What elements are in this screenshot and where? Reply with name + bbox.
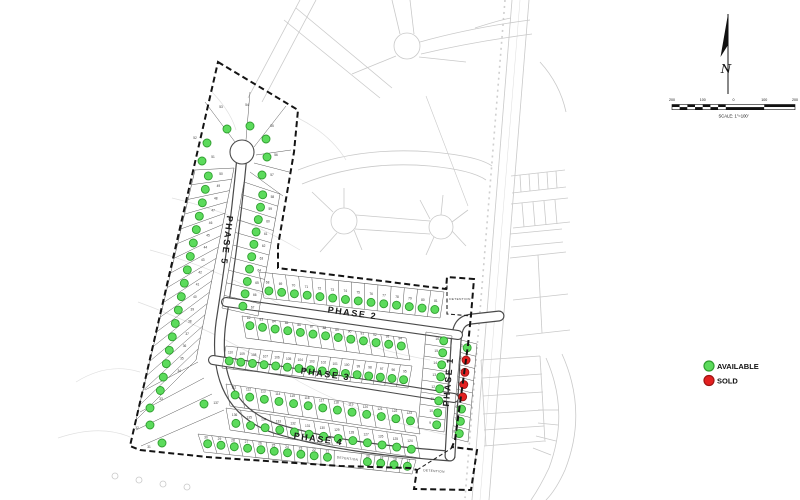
lot-divider <box>415 289 418 315</box>
lot-number: 99 <box>357 364 361 368</box>
lot-dot-available <box>248 253 256 261</box>
lot-divider <box>393 336 397 358</box>
lot-divider <box>225 437 230 455</box>
background-plat-line <box>538 255 542 333</box>
lot-divider <box>328 399 332 421</box>
lot-dot-available <box>284 327 292 335</box>
background-plat-line <box>472 0 512 500</box>
lot-dot-available <box>284 449 292 457</box>
lot-number: 96 <box>392 368 396 372</box>
lot-divider <box>416 412 420 434</box>
lot-divider <box>458 377 474 381</box>
lot-line <box>246 92 250 140</box>
lot-number: 116 <box>304 396 309 400</box>
background-plat-line <box>296 8 392 88</box>
lot-dot-available <box>168 333 176 341</box>
lot-dot-available <box>341 295 349 303</box>
lot-divider <box>419 416 445 420</box>
lot-divider <box>195 168 234 170</box>
lot-dot-available <box>246 122 254 130</box>
lot-divider <box>270 390 274 412</box>
lot-divider <box>368 333 372 355</box>
contour-line <box>298 118 346 160</box>
lot-divider <box>280 321 284 343</box>
contour-line <box>58 431 130 438</box>
lot-number: 41 <box>196 283 200 287</box>
background-plat-line <box>544 201 546 225</box>
lot-dot-available <box>223 125 231 133</box>
background-culdesac <box>331 208 357 234</box>
background-plat-line <box>533 202 535 226</box>
lot-dot-available <box>201 185 209 193</box>
lot-dot-available <box>400 376 408 384</box>
lot-number: 77 <box>382 293 386 297</box>
lot-dot-available <box>259 323 267 331</box>
scale-bar-block <box>764 105 795 108</box>
lot-dot-available <box>183 266 191 274</box>
lot-divider <box>352 282 353 308</box>
lot-dot-available <box>203 139 211 147</box>
lot-number: 38 <box>188 320 192 324</box>
lot-divider <box>381 335 385 357</box>
lot-number: 39 <box>191 307 195 311</box>
lot-dot-available <box>246 265 254 273</box>
lot-dot-available <box>189 239 197 247</box>
lot-dot-available <box>258 171 266 179</box>
lot-dot-available <box>347 335 355 343</box>
lot-dot-available <box>316 293 324 301</box>
lot-dot-available <box>303 291 311 299</box>
background-plat-line <box>298 151 492 170</box>
lot-dot-available <box>405 303 413 311</box>
background-culdesac <box>136 477 142 483</box>
lot-number: 67 <box>251 305 255 309</box>
background-plat-line <box>538 423 558 425</box>
lot-dot-available <box>290 400 298 408</box>
background-culdesac <box>184 484 190 490</box>
lot-number: 50 <box>219 172 223 176</box>
lot-divider <box>285 275 289 301</box>
lot-dot-available <box>349 437 357 445</box>
lot-dot-available <box>309 330 317 338</box>
background-plat-line <box>312 192 333 212</box>
lot-dot-available <box>204 440 212 448</box>
lot-number: 60 <box>266 220 270 224</box>
background-plat-line <box>511 242 563 247</box>
lot-dot-available <box>363 458 371 466</box>
lot-number: 80 <box>421 298 425 302</box>
lot-divider <box>267 319 271 341</box>
lot-number: 109 <box>239 352 245 356</box>
background-plat-line <box>484 426 544 430</box>
lot-dot-available <box>262 135 270 143</box>
lot-divider <box>171 247 219 273</box>
lot-number: 62 <box>262 244 266 248</box>
lot-dot-available <box>244 444 252 452</box>
lot-dot-available <box>385 340 393 348</box>
background-plat-line <box>481 356 540 360</box>
lot-dot-available <box>439 349 447 357</box>
lot-number: 122 <box>392 409 398 413</box>
scale-bar-block <box>703 107 711 110</box>
lot-number: 79 <box>408 296 412 300</box>
lot-dot-available <box>257 446 265 454</box>
lot-number: 93 <box>386 335 390 339</box>
lot-divider <box>358 403 362 425</box>
lot-dot-available <box>363 439 371 447</box>
background-plat-line <box>533 448 551 455</box>
scale-caption: SCALE: 1"=100' <box>718 114 748 119</box>
contour-line <box>76 369 140 382</box>
background-plat-line <box>410 0 414 34</box>
lot-number: 123 <box>407 411 413 415</box>
lot-number: 86 <box>297 323 301 327</box>
lot-number: 24 <box>285 445 289 449</box>
lot-divider <box>440 292 444 318</box>
lot-dot-available <box>247 422 255 430</box>
lot-dot-available <box>146 404 154 412</box>
lot-divider <box>325 279 327 305</box>
lot-divider <box>293 445 295 461</box>
background-plat-line <box>540 356 545 442</box>
lot-divider <box>390 286 391 312</box>
lot-number: 28 <box>231 439 235 443</box>
lot-line <box>141 410 224 446</box>
lot-divider <box>399 458 402 472</box>
lot-line <box>145 362 198 390</box>
background-plat-line <box>516 330 570 336</box>
lot-dot-available <box>272 362 280 370</box>
lot-number: 69 <box>279 282 283 286</box>
lot-dot-available <box>263 153 271 161</box>
lot-number: 42 <box>198 270 202 274</box>
detention-label: DETENTION <box>423 468 445 473</box>
lot-dot-available <box>259 191 267 199</box>
background-plat-line <box>354 230 362 250</box>
lot-dot-available <box>225 357 233 365</box>
lot-divider <box>307 447 308 463</box>
lot-number: 125 <box>393 437 399 441</box>
background-plat-line <box>320 233 337 252</box>
lot-number: 102 <box>321 361 327 365</box>
scale-bar-block <box>672 105 680 108</box>
scale-tick-label: 0 <box>733 98 735 102</box>
background-plat-line <box>480 0 520 500</box>
lot-number: 26 <box>258 442 262 446</box>
lot-number: 110 <box>228 351 233 355</box>
lot-divider <box>330 328 334 350</box>
scale-bar-block <box>695 107 703 110</box>
lot-divider <box>266 442 269 459</box>
background-plat-line <box>355 229 430 234</box>
lot-dot-available <box>257 203 265 211</box>
contour-line <box>210 90 236 130</box>
lot-dot-available <box>270 447 278 455</box>
lot-dot-available <box>232 419 240 427</box>
lot-dot-available <box>275 397 283 405</box>
lot-number: 49 <box>217 184 221 188</box>
lot-dot-available <box>180 279 188 287</box>
background-plat-line <box>531 358 559 500</box>
lot-dot-available <box>376 373 384 381</box>
lot-number: 55 <box>270 124 274 128</box>
lot-divider <box>412 460 416 474</box>
lot-dot-available <box>393 443 401 451</box>
lot-number: 14 <box>433 361 437 365</box>
lot-number: 84 <box>272 319 276 323</box>
background-plat-line <box>426 237 434 255</box>
lot-divider <box>198 434 204 452</box>
lot-number: 66 <box>253 293 257 297</box>
lot-number: 134 <box>261 417 267 421</box>
lot-dot-available <box>296 328 304 336</box>
lot-number: 88 <box>323 326 327 330</box>
lot-number: 30 <box>204 435 208 439</box>
lot-dot-available <box>290 290 298 298</box>
lot-dot-available <box>237 358 245 366</box>
background-plat-line <box>522 203 524 227</box>
lot-dot-available <box>392 415 400 423</box>
lot-number: 118 <box>334 400 339 404</box>
lot-dot-available <box>158 439 166 447</box>
lot-number: 68 <box>266 281 270 285</box>
lot-number: 33 <box>159 397 163 401</box>
scale-bar-block <box>710 105 718 108</box>
lot-number: 13 <box>432 373 436 377</box>
lot-divider <box>373 455 375 470</box>
lot-dot-available <box>333 406 341 414</box>
scale-bar: 200 100 0 100 200 SCALE: 1"=100' <box>669 98 798 119</box>
subdivision-plat: 5049484746454443424140393837363534585960… <box>58 0 576 500</box>
lot-dot-available <box>348 408 356 416</box>
lot-number: 108 <box>251 353 257 357</box>
lot-divider <box>242 316 246 338</box>
lot-number: 54 <box>245 103 249 107</box>
lot-dot-available <box>246 393 254 401</box>
lot-number: 91 <box>360 331 364 335</box>
lot-number: 124 <box>407 439 413 443</box>
lot-number: 128 <box>349 430 355 434</box>
lot-dot-available <box>246 322 254 330</box>
lot-divider <box>425 344 451 348</box>
lot-divider <box>239 439 243 456</box>
lot-number: 71 <box>305 285 309 289</box>
background-plat-line <box>420 20 530 42</box>
lot-number: 27 <box>245 440 249 444</box>
background-plat-line <box>540 62 566 112</box>
lot-dot-available <box>192 226 200 234</box>
lot-number: 35 <box>180 357 184 361</box>
lot-number: 9 <box>429 421 431 425</box>
lot-number: 47 <box>211 209 215 213</box>
lot-number: 98 <box>368 366 372 370</box>
north-label: N <box>720 62 732 76</box>
scale-bar-blocks <box>672 105 795 110</box>
detention-label: DETENTION <box>449 297 470 301</box>
lot-number: 82 <box>247 316 251 320</box>
lot-number: 100 <box>344 363 350 367</box>
lot-number: 129 <box>334 428 340 432</box>
lot-number: 117 <box>319 398 324 402</box>
lot-dot-available <box>372 339 380 347</box>
lot-divider <box>305 324 309 346</box>
scale-bar-block <box>680 107 688 110</box>
lot-divider <box>427 291 430 317</box>
lot-divider <box>401 410 405 432</box>
scale-bar-block <box>718 105 726 108</box>
lot-number: 32 <box>135 426 139 430</box>
background-plat-line <box>426 96 468 206</box>
lot-line <box>254 163 289 172</box>
lot-dot-available <box>252 228 260 236</box>
scale-tick-label: 100 <box>700 98 706 102</box>
scale-bar-block <box>687 107 695 110</box>
lot-dot-available <box>329 294 337 302</box>
lot-number: 46 <box>209 221 213 225</box>
lot-number: 111 <box>231 385 236 389</box>
lot-number: 65 <box>255 281 259 285</box>
detention-label: DETENTION <box>337 455 359 462</box>
background-plat-line <box>510 229 562 234</box>
lot-number: 103 <box>309 359 315 363</box>
lot-number: 40 <box>193 295 197 299</box>
lot-number: 132 <box>290 422 296 426</box>
lot-number: 89 <box>335 328 339 332</box>
background-plat-line <box>520 175 521 192</box>
lot-number: 114 <box>275 392 280 396</box>
scale-bar-block <box>726 105 734 108</box>
background-plat-line <box>555 200 557 224</box>
lot-number: 52 <box>193 136 197 140</box>
lot-dot-available <box>254 216 262 224</box>
lot-dot-available <box>198 157 206 165</box>
lot-dot-available <box>322 332 330 340</box>
lot-dot-available <box>231 391 239 399</box>
lot-dot-available <box>248 359 256 367</box>
lot-dot-available <box>230 443 238 451</box>
lot-dot-available <box>146 421 154 429</box>
lot-dot-available <box>388 374 396 382</box>
lot-dot-available <box>195 212 203 220</box>
site-map: 5049484746454443424140393837363534585960… <box>0 0 800 500</box>
lot-number: 121 <box>377 407 383 411</box>
background-plat-line <box>538 173 539 190</box>
lot-number: 70 <box>292 283 296 287</box>
lot-number: 120 <box>363 405 369 409</box>
background-plat-line <box>392 0 400 34</box>
lot-number: 85 <box>285 321 289 325</box>
lot-divider <box>255 318 259 340</box>
background-plat-line <box>529 174 530 191</box>
scale-tick-label: 200 <box>792 98 798 102</box>
lot-dot-available <box>363 410 371 418</box>
lot-divider <box>280 444 282 461</box>
lot-divider <box>255 388 259 410</box>
lot-dot-available <box>241 290 249 298</box>
lot-dot-available <box>165 346 173 354</box>
lot-dot-available <box>271 325 279 333</box>
background-plat-line <box>536 436 556 441</box>
lot-dot-available <box>406 417 414 425</box>
lot-number: 105 <box>286 357 292 361</box>
lot-number: 131 <box>305 424 311 428</box>
culdesac <box>230 140 254 164</box>
lot-dot-available <box>377 459 385 467</box>
lot-dot-available <box>393 301 401 309</box>
lot-dot-available <box>186 252 194 260</box>
background-plat-line <box>481 360 486 446</box>
lot-dot-available <box>353 371 361 379</box>
lot-dot-available <box>260 361 268 369</box>
lot-number: 31 <box>147 445 151 449</box>
lot-divider <box>226 408 230 430</box>
lot-divider <box>459 365 475 369</box>
lot-dot-available <box>156 386 164 394</box>
lot-dot-available <box>378 441 386 449</box>
lot-dot-available <box>380 300 388 308</box>
property-boundary <box>130 62 477 490</box>
lot-divider <box>396 365 400 387</box>
lot-divider <box>299 276 302 302</box>
north-arrow-head-icon <box>721 14 729 57</box>
lot-divider <box>318 326 322 348</box>
lot-number: 25 <box>272 443 276 447</box>
background-plat-line <box>482 374 542 378</box>
background-plat-line <box>419 57 466 62</box>
lot-number: 48 <box>214 196 218 200</box>
background-plat-line <box>248 0 300 98</box>
lot-divider <box>372 406 376 428</box>
background-culdesac <box>394 33 420 59</box>
lot-dot-available <box>434 409 442 417</box>
scale-bar-block <box>718 107 726 110</box>
lot-dot-available <box>367 298 375 306</box>
lot-divider <box>292 323 296 345</box>
lot-number: 56 <box>274 153 278 157</box>
scale-bar-block <box>672 107 680 110</box>
background-culdesac <box>160 481 166 487</box>
lot-dot-available <box>297 450 305 458</box>
scale-bar-block <box>680 105 688 108</box>
lot-dot-available <box>323 453 331 461</box>
lot-dot-available <box>407 445 415 453</box>
lot-number: 29 <box>218 437 222 441</box>
lot-dot-available <box>243 277 251 285</box>
legend: AVAILABLE SOLD <box>704 361 759 386</box>
lot-number: 97 <box>380 367 384 371</box>
lot-divider <box>178 224 223 243</box>
background-plat-line <box>547 172 548 189</box>
lot-divider <box>387 408 391 430</box>
scale-tick-label: 100 <box>761 98 767 102</box>
lot-number: 113 <box>261 390 266 394</box>
lot-dot-available <box>433 421 441 429</box>
lot-divider <box>272 273 276 299</box>
lot-number: 16 <box>435 337 439 341</box>
lot-dot-available <box>397 342 405 350</box>
lot-number: 73 <box>331 288 335 292</box>
lot-dot-available <box>418 304 426 312</box>
lot-dot-available <box>304 402 312 410</box>
lot-number: 63 <box>260 256 264 260</box>
lot-number: 104 <box>298 358 304 362</box>
lot-number: 126 <box>378 435 384 439</box>
background-plat-line <box>513 222 570 228</box>
lot-dot-available <box>365 372 373 380</box>
lot-number: 107 <box>263 354 269 358</box>
legend-sold-label: SOLD <box>717 377 738 386</box>
lot-divider <box>338 281 339 307</box>
